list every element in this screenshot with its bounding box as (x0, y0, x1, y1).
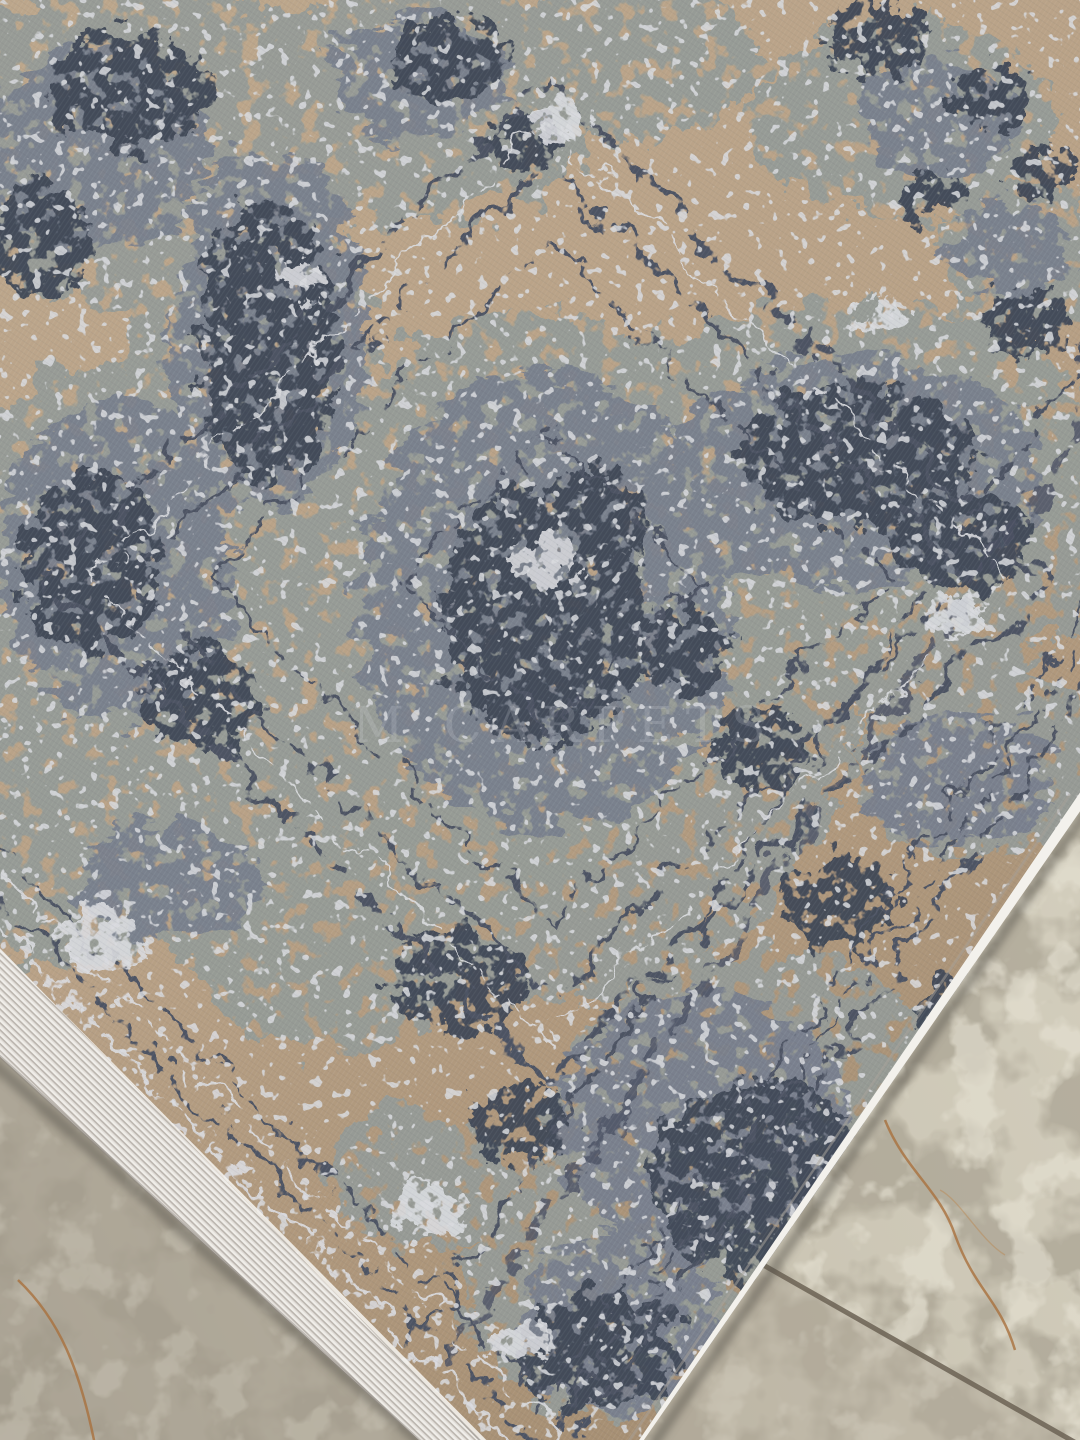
rug-photo: M CARPETS (0, 0, 1080, 1440)
photo-canvas: M CARPETS (0, 0, 1080, 1440)
watermark-text: M CARPETS (353, 696, 778, 754)
